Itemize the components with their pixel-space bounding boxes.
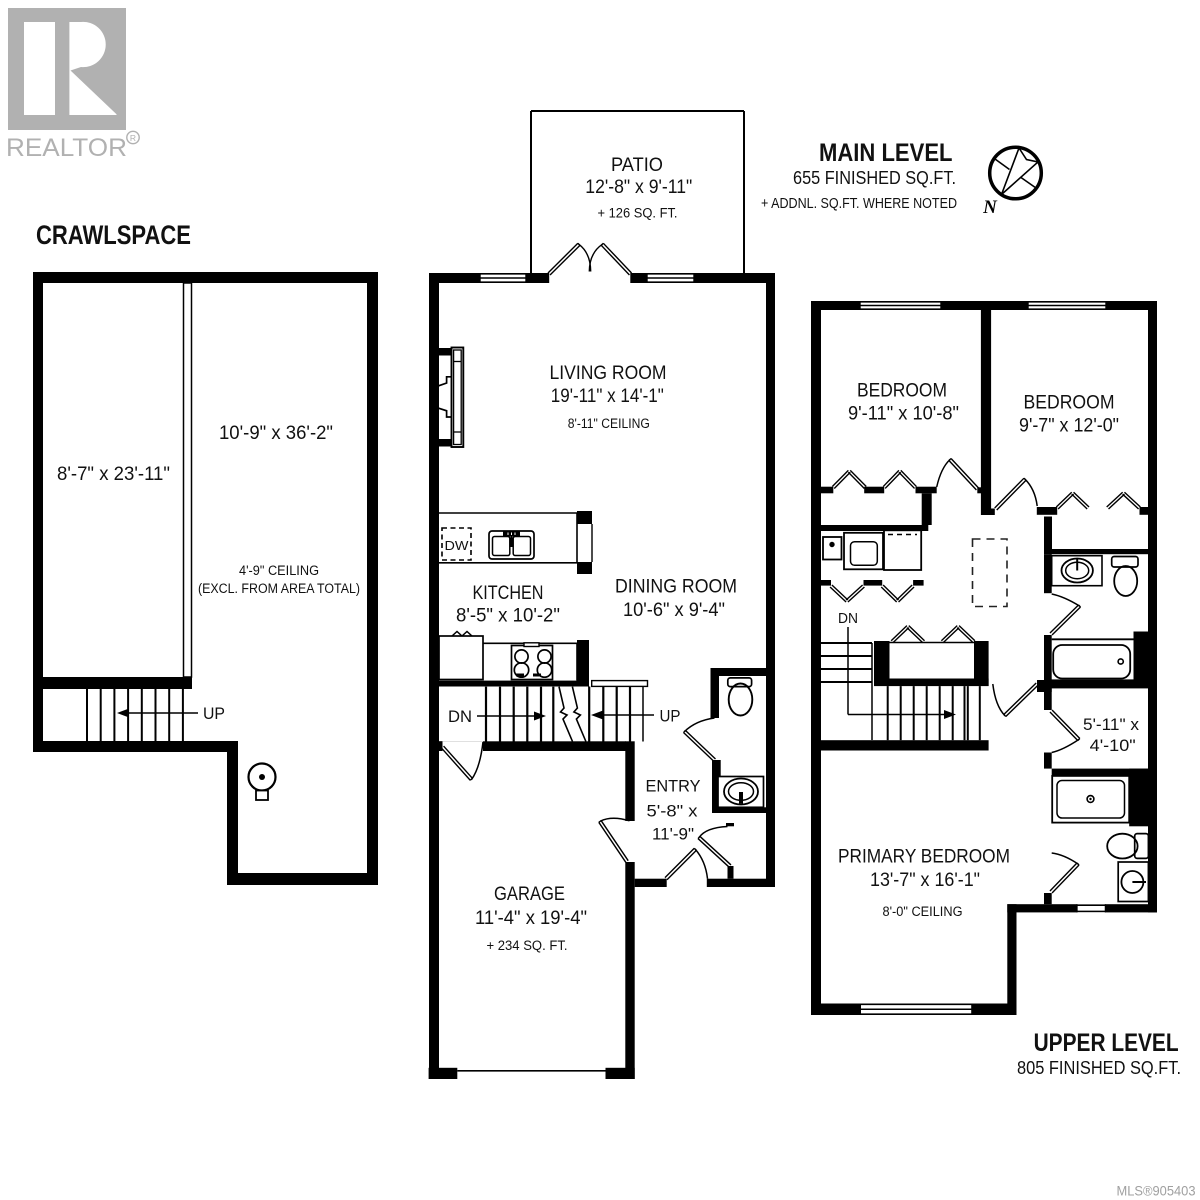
svg-text:PATIO: PATIO [611,155,663,176]
svg-text:BEDROOM: BEDROOM [1024,393,1115,414]
svg-text:11'-4" x 19'-4": 11'-4" x 19'-4" [475,908,587,929]
svg-text:4'-9" CEILING: 4'-9" CEILING [239,563,319,578]
svg-text:11'-9": 11'-9" [652,824,694,843]
svg-text:UP: UP [203,705,225,723]
svg-text:13'-7" x 16'-1": 13'-7" x 16'-1" [870,870,980,891]
svg-text:10'-6" x 9'-4": 10'-6" x 9'-4" [623,600,725,621]
svg-text:5'-8" x: 5'-8" x [647,802,699,821]
svg-text:KITCHEN: KITCHEN [473,583,544,604]
svg-text:12'-8" x 9'-11": 12'-8" x 9'-11" [585,177,692,198]
svg-text:+ ADDNL. SQ.FT. WHERE NOTED: + ADDNL. SQ.FT. WHERE NOTED [761,195,957,212]
svg-text:MAIN LEVEL: MAIN LEVEL [819,139,953,167]
svg-text:9'-7" x 12'-0": 9'-7" x 12'-0" [1019,416,1119,437]
svg-text:BEDROOM: BEDROOM [857,381,947,402]
svg-text:R: R [130,133,136,143]
svg-text:CRAWLSPACE: CRAWLSPACE [36,220,191,250]
svg-text:8'-5" x 10'-2": 8'-5" x 10'-2" [456,606,560,627]
svg-text:REALTOR: REALTOR [6,134,127,162]
svg-text:PRIMARY BEDROOM: PRIMARY BEDROOM [838,847,1010,868]
svg-text:655 FINISHED SQ.FT.: 655 FINISHED SQ.FT. [793,168,956,188]
svg-text:DINING ROOM: DINING ROOM [615,577,737,598]
svg-text:+ 126 SQ. FT.: + 126 SQ. FT. [598,206,678,221]
svg-text:LIVING ROOM: LIVING ROOM [550,363,667,384]
svg-text:DN: DN [448,707,472,726]
svg-text:UPPER LEVEL: UPPER LEVEL [1034,1029,1179,1057]
svg-text:4'-10": 4'-10" [1090,736,1136,755]
svg-text:N: N [982,197,998,218]
svg-text:MLS®905403: MLS®905403 [1117,1183,1196,1199]
svg-text:DN: DN [838,611,858,627]
svg-text:+ 234 SQ. FT.: + 234 SQ. FT. [487,938,568,953]
svg-text:8'-0" CEILING: 8'-0" CEILING [883,904,963,919]
svg-text:19'-11" x 14'-1": 19'-11" x 14'-1" [551,386,664,407]
svg-text:DW: DW [445,538,470,553]
svg-text:GARAGE: GARAGE [494,884,565,905]
svg-text:UP: UP [660,707,681,726]
svg-text:9'-11" x 10'-8": 9'-11" x 10'-8" [848,404,959,425]
svg-text:(EXCL. FROM AREA TOTAL): (EXCL. FROM AREA TOTAL) [198,581,360,596]
svg-text:10'-9" x 36'-2": 10'-9" x 36'-2" [219,423,333,444]
svg-text:ENTRY: ENTRY [646,777,701,796]
svg-text:8'-7" x 23'-11": 8'-7" x 23'-11" [57,464,170,485]
svg-text:805 FINISHED SQ.FT.: 805 FINISHED SQ.FT. [1017,1057,1181,1078]
svg-text:5'-11" x: 5'-11" x [1083,715,1139,734]
svg-text:8'-11" CEILING: 8'-11" CEILING [568,416,650,431]
